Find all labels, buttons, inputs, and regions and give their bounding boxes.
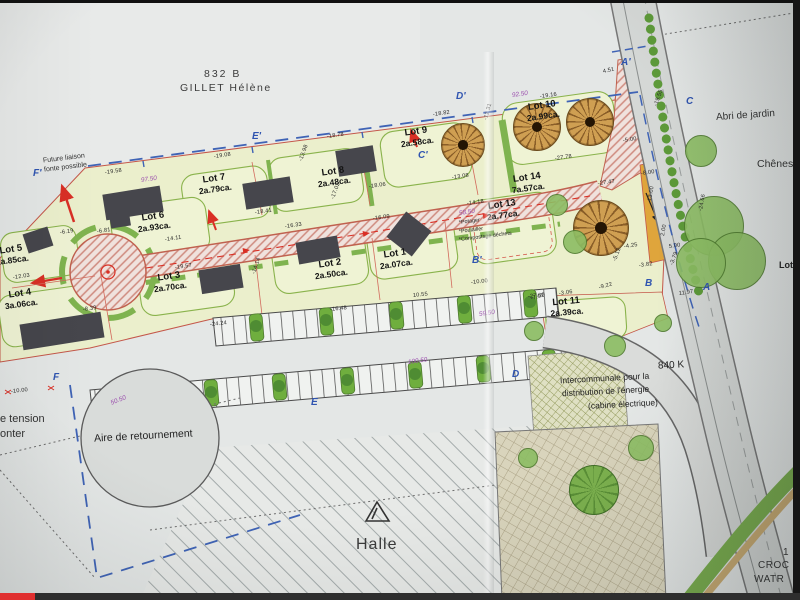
measurement-label: -19.58 [105, 168, 123, 176]
lot-label: Lot 102a.99ca. [525, 98, 561, 123]
survey-marker-c: C [686, 96, 693, 107]
measurement-label: -12.31 [483, 103, 493, 121]
lot-label: Lot 147a.57ca. [510, 170, 546, 195]
measurement-label: -10.00 [11, 387, 29, 395]
measurement-label: -14.18 [467, 199, 485, 207]
measurement-label: -24.66 [698, 194, 707, 212]
measurement-label: -9.22 [598, 282, 613, 291]
chainage-label: 97.50 [141, 175, 158, 184]
survey-marker-d-prime: D' [456, 91, 466, 102]
measurement-label: -27.47 [598, 179, 616, 187]
measurement-label: 2.00 [660, 224, 668, 237]
lot-label: Lot 22a.50ca. [313, 256, 349, 281]
survey-marker-b: B [645, 278, 652, 289]
measurement-label: -3.79 [669, 251, 679, 266]
chainage-label: 50.50 [110, 394, 127, 406]
measurement-label: -16.33 [285, 222, 303, 230]
measurement-label: -8.39 [83, 305, 97, 313]
measurement-label: -18.78 [327, 132, 345, 140]
survey-marker-a-prime: A' [621, 57, 631, 68]
generated-labels-layer: Lot 12a.07ca.Lot 22a.50ca.Lot 32a.70ca.L… [0, 0, 800, 600]
measurement-label: -6.81 [97, 227, 111, 235]
survey-marker-f-prime: F' [33, 168, 42, 179]
measurement-label: 5.00 [669, 242, 681, 250]
lot-label: Lot 92a.58ca. [399, 124, 435, 149]
survey-marker-d: D [512, 369, 519, 380]
measurement-label: -19.57 [175, 263, 193, 271]
measurement-label: -19.55 [653, 89, 664, 107]
measurement-label: -10.00 [471, 278, 489, 286]
measurement-label: 10.55 [413, 291, 429, 299]
survey-marker-e: E [311, 397, 318, 408]
measurement-label: -18.41 [255, 208, 273, 216]
lot-label: Lot 112a.39ca. [549, 295, 584, 319]
lot-label: Lot 62a.93ca. [136, 209, 172, 234]
measurement-label: 4.51 [602, 67, 615, 75]
measurement-label: -18.06 [369, 182, 387, 190]
measurement-label: -14.11 [165, 235, 182, 243]
player-progress-bar[interactable] [0, 593, 35, 600]
survey-marker-a: A [703, 282, 710, 293]
measurement-label: -24.24 [210, 320, 228, 328]
measurement-label: -6.19 [60, 228, 74, 236]
chainage-label: 100.50 [408, 356, 428, 366]
measurement-label: -12.03 [13, 273, 31, 281]
video-frame: 832 B GILLET Hélène Future liaison fonte… [0, 0, 800, 600]
measurement-label: -4.25 [624, 242, 638, 250]
measurement-label: 13.00 [647, 186, 656, 202]
measurement-label: -3.82 [639, 261, 653, 269]
measurement-label: -16.48 [330, 305, 348, 313]
measurement-label: -16.09 [373, 214, 391, 222]
lot-label: Lot 43a.06ca. [3, 286, 39, 311]
measurement-label: -5.12 [612, 247, 622, 262]
survey-marker-e-prime: E' [252, 131, 261, 142]
lot-label: Lot 52a.85ca. [0, 242, 29, 267]
chainage-label: 58.50 [459, 208, 476, 217]
chainage-label: 92.50 [512, 90, 529, 99]
measurement-label: -19.08 [214, 152, 232, 160]
measurement-label: -8.00 [641, 169, 655, 177]
chainage-label: 59.50 [479, 309, 496, 318]
lot-label: Lot 72a.79ca. [197, 171, 233, 196]
survey-marker-b-prime: B' [472, 255, 482, 266]
letterbox-right [793, 0, 800, 600]
measurement-label: -5.00 [623, 136, 637, 144]
measurement-label: -18.82 [433, 110, 451, 118]
survey-marker-c-prime: C' [418, 150, 428, 161]
measurement-label: -14.14 [251, 257, 262, 275]
lot-label: Lot 132a.77ca. [485, 197, 521, 222]
lot13-amenity: *Potager [459, 217, 481, 226]
lot-label: Lot 32a.70ca. [152, 269, 188, 294]
measurement-label: -27.78 [555, 154, 573, 162]
survey-marker-f: F [53, 372, 59, 383]
lot13-amenity: *Poulailler [459, 226, 484, 235]
letterbox-top [0, 0, 800, 3]
measurement-label: -13.08 [452, 173, 470, 181]
measurement-label: 11.97 [679, 289, 694, 297]
player-progress-track[interactable] [0, 593, 800, 600]
measurement-label: -13.98 [298, 144, 309, 162]
lot-label: Lot 12a.07ca. [378, 246, 414, 271]
